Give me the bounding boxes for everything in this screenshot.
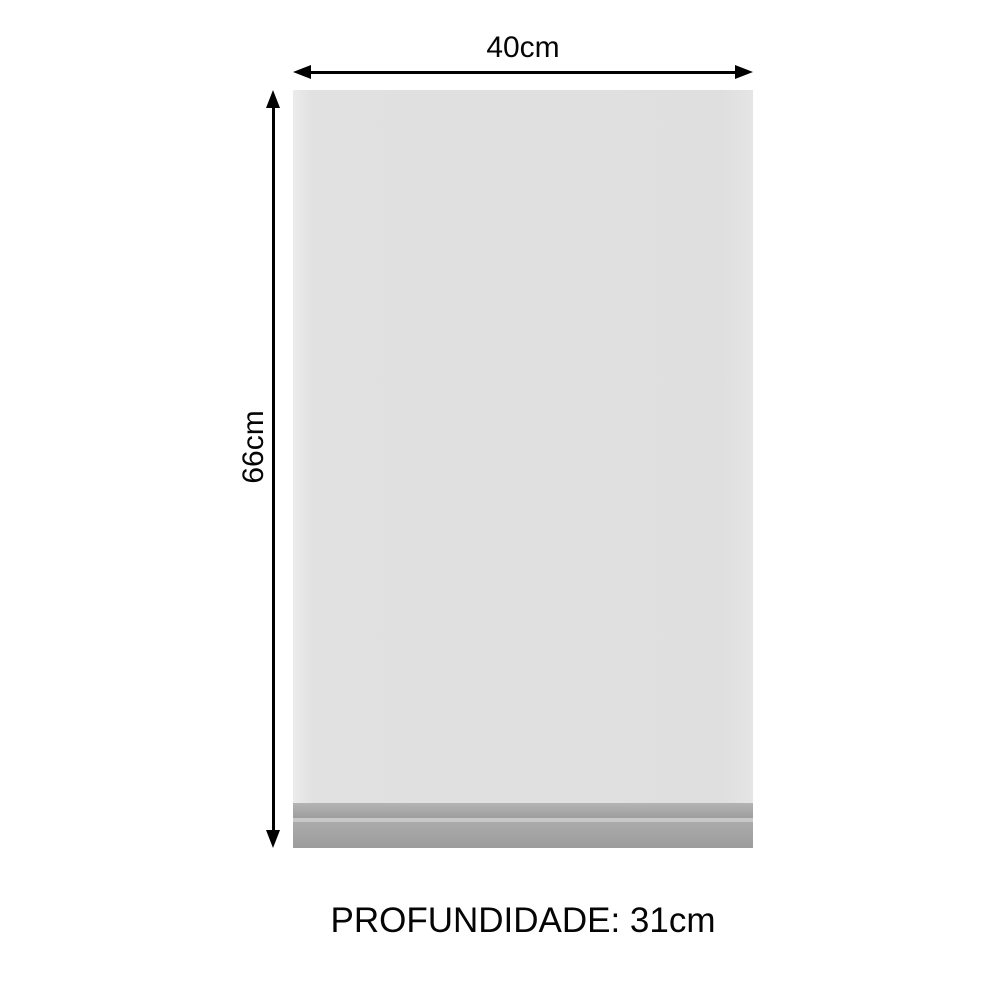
- cabinet-dimension-diagram: 40cm 66cm PROFUNDIDADE: 31cm: [0, 0, 1000, 1000]
- cabinet-door-panel: [293, 90, 753, 848]
- width-dimension-arrow: [293, 65, 753, 79]
- base-strip-top-band: [293, 803, 753, 818]
- arrow-shaft: [298, 71, 748, 74]
- width-dimension-label: 40cm: [293, 33, 753, 63]
- cabinet-base-strip: [293, 803, 753, 848]
- height-dimension-label: 66cm: [239, 410, 269, 483]
- arrowhead-down-icon: [266, 830, 280, 848]
- base-strip-bottom-band: [293, 822, 753, 848]
- height-dimension-arrow: [266, 90, 280, 848]
- arrow-shaft: [272, 95, 275, 843]
- arrowhead-right-icon: [735, 65, 753, 79]
- depth-label: PROFUNDIDADE: 31cm: [293, 903, 753, 938]
